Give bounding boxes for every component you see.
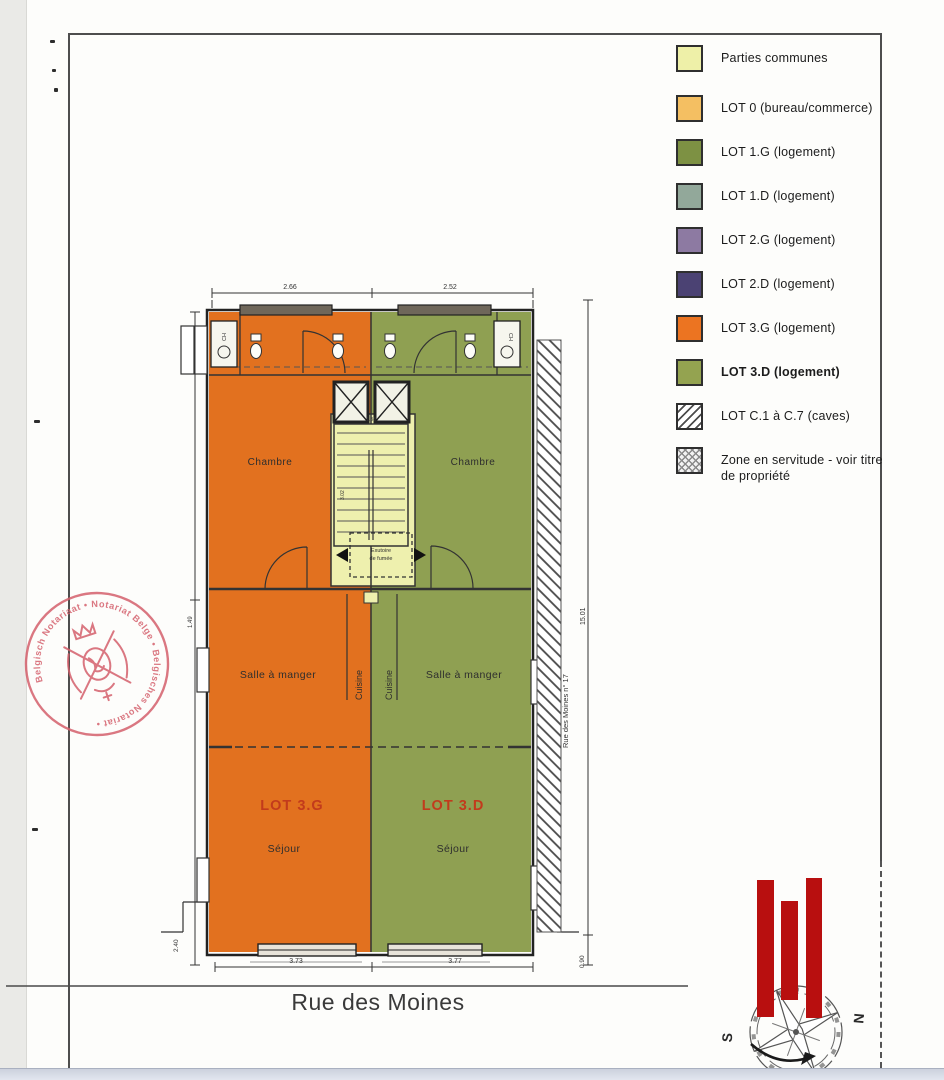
- street-name: Rue des Moines: [291, 989, 464, 1015]
- red-bars-logo: [757, 878, 822, 1018]
- lot-3d-label: LOT 3.D: [422, 798, 485, 814]
- ch-right-label: CH: [507, 333, 513, 341]
- smoke-vent-label-2: de fumée: [370, 556, 393, 562]
- staircase: [334, 424, 408, 546]
- scanned-plan-page: Parties communesLOT 0 (bureau/commerce)L…: [0, 0, 944, 1080]
- caves-hatch-strip: [537, 340, 561, 932]
- room-salle-left: Salle à manger: [240, 669, 316, 681]
- dim-stair-width: 1.38: [366, 417, 376, 423]
- lot-3g-label: LOT 3.G: [260, 798, 323, 814]
- dim-bottom-left: 3.73: [289, 958, 303, 965]
- room-chambre-left: Chambre: [248, 457, 293, 468]
- dim-right-offset: 0.90: [579, 955, 586, 968]
- window-edge-band: [0, 1068, 944, 1080]
- dim-top-left: 2.66: [283, 284, 297, 291]
- street-side-label: Rue des Moines n° 17: [561, 674, 570, 748]
- floor-plan-svg: Exutoire de fumée: [0, 0, 944, 1080]
- dim-stair-height: 3.02: [340, 490, 346, 500]
- compass-north-label: N: [851, 1013, 868, 1024]
- building-body: [207, 310, 533, 955]
- kitchen-shaft: [364, 592, 378, 603]
- room-cuisine-right: Cuisine: [384, 670, 394, 700]
- dim-right-total: 15.01: [580, 607, 587, 625]
- dim-bottom-right: 3.77: [448, 958, 462, 965]
- dim-left-upper: 1.49: [188, 616, 194, 628]
- dim-left-lower: 2.40: [173, 939, 180, 952]
- compass-south-label: S: [719, 1032, 736, 1043]
- room-salle-right: Salle à manger: [426, 669, 502, 681]
- notary-stamp: Belgisch Notariaat • Notariat Belge • Be…: [8, 575, 187, 754]
- dim-top-right: 2.52: [443, 284, 457, 291]
- smoke-vent-label-1: Exutoire: [371, 548, 391, 554]
- room-sejour-right: Séjour: [437, 843, 470, 855]
- room-sejour-left: Séjour: [268, 843, 301, 855]
- room-chambre-right: Chambre: [451, 457, 496, 468]
- ch-left-label: CH: [222, 333, 228, 341]
- room-cuisine-left: Cuisine: [354, 670, 364, 700]
